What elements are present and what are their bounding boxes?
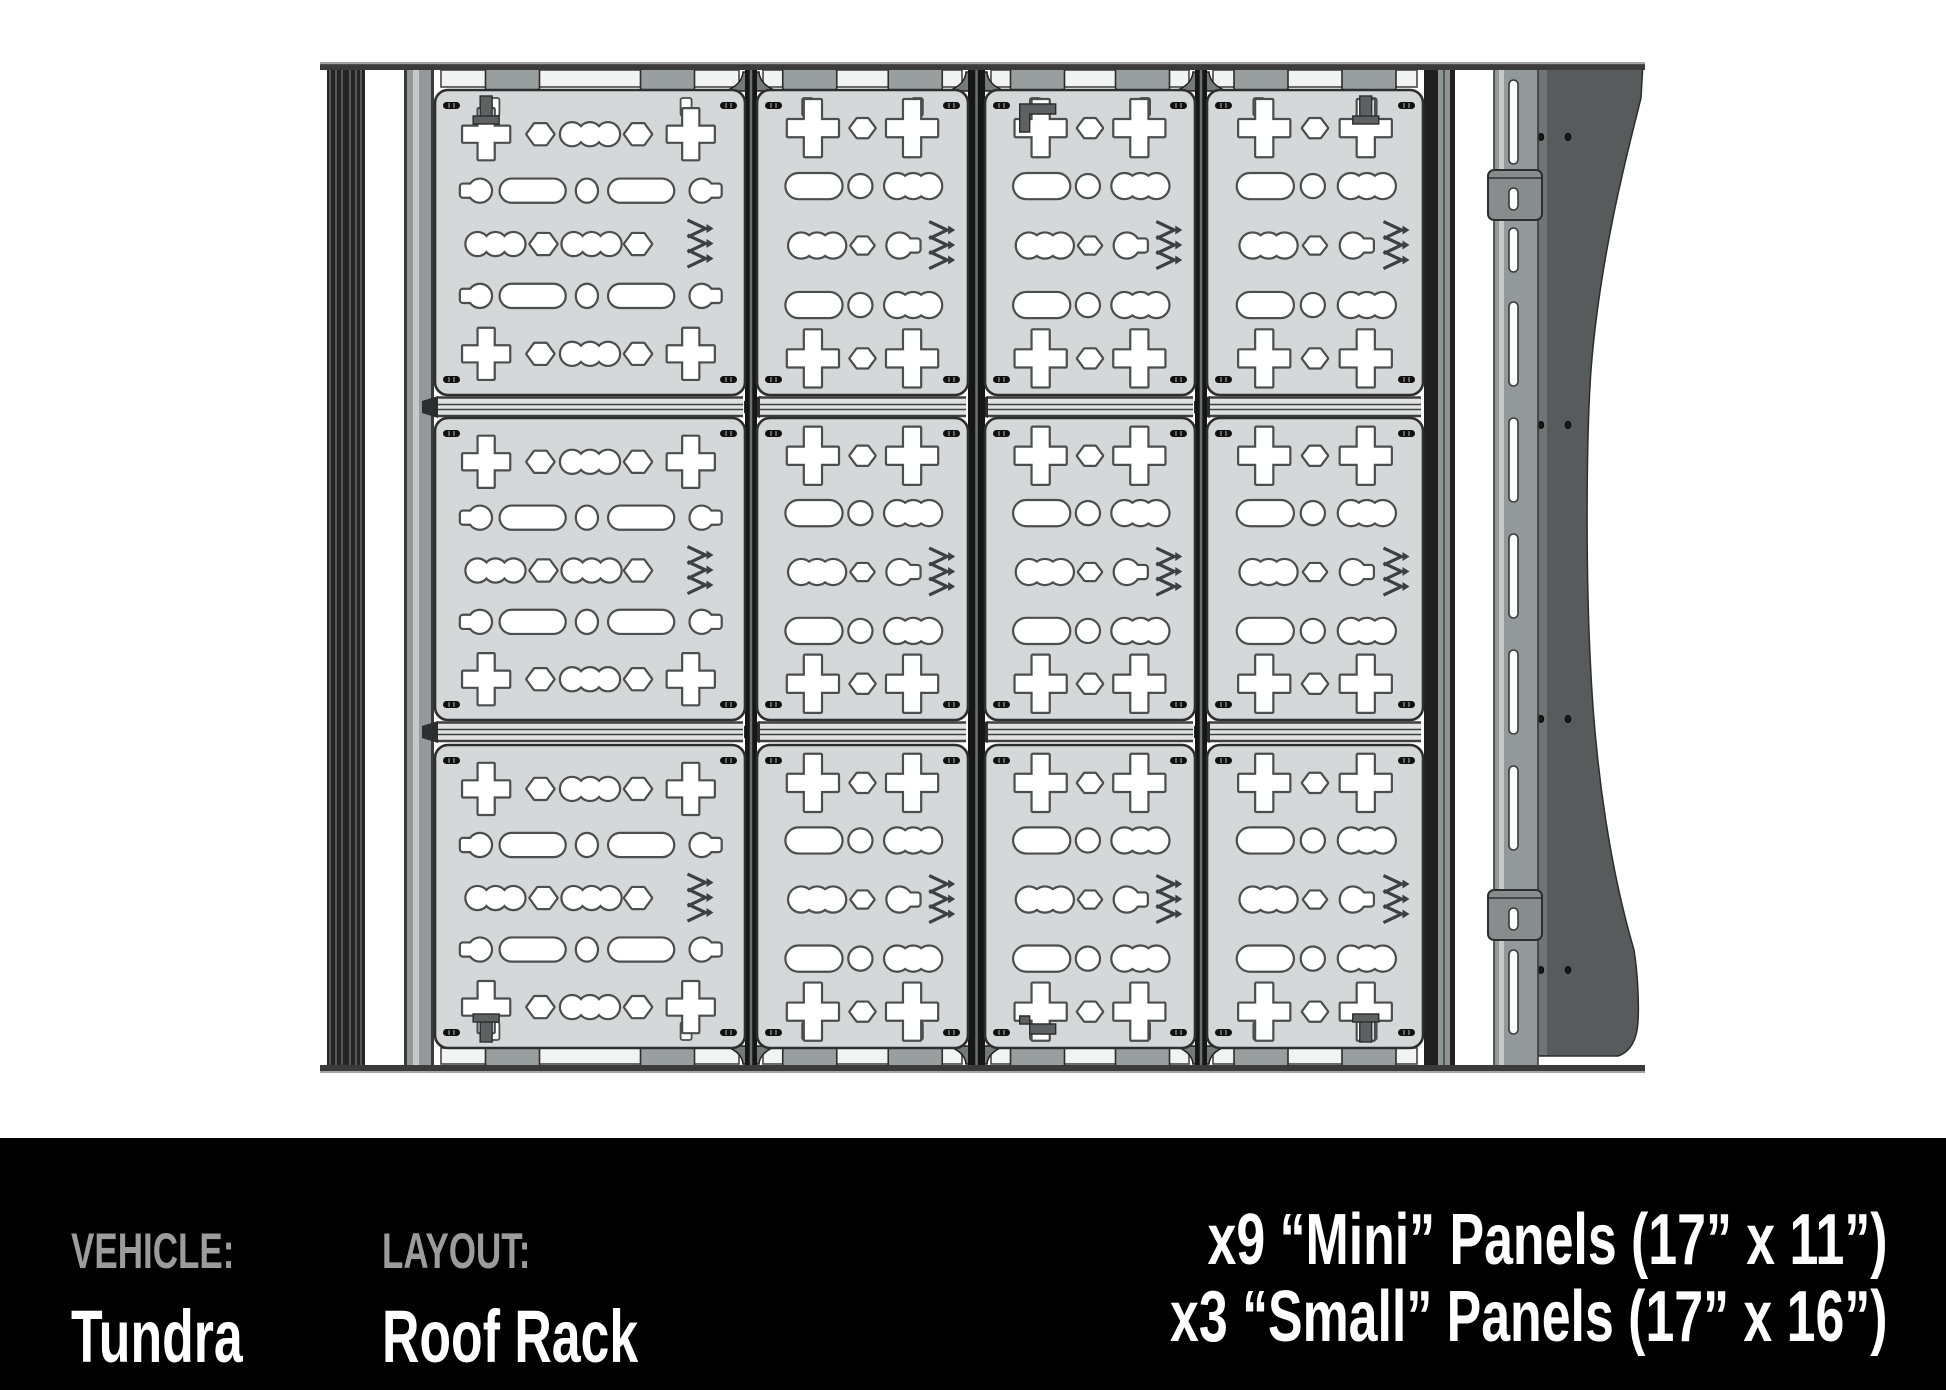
panel-screw [1170, 376, 1187, 383]
rail-clamp-bracket [1488, 170, 1542, 220]
panel-small-r2-c1 [435, 418, 745, 720]
panel-screw [1170, 757, 1187, 764]
rail-slot [1509, 418, 1518, 502]
fairing-hole [1565, 421, 1571, 428]
panel-screw [443, 757, 460, 764]
fairing-hole [1538, 133, 1544, 140]
panel-screw [443, 102, 460, 109]
panel-screw [720, 102, 737, 109]
rail-slot [1509, 534, 1518, 618]
panel-screw [993, 102, 1010, 109]
panel-screw [943, 757, 960, 764]
panel-grid [435, 90, 1423, 1048]
left-rail [327, 66, 365, 1068]
panel-screw [1398, 1029, 1415, 1036]
panel-screw [943, 1029, 960, 1036]
panel-screw [765, 701, 782, 708]
panel-mini-r1-c2 [757, 90, 968, 395]
panel-screw [993, 757, 1010, 764]
panel-screw [720, 1029, 737, 1036]
panel-mini-r3-c2 [757, 745, 968, 1048]
panel-small-r3-c1 [435, 745, 745, 1048]
wind-fairing [1538, 63, 1643, 1056]
panel-mini-r2-c3 [985, 418, 1195, 720]
panel-screw [720, 757, 737, 764]
panel-screw [1398, 102, 1415, 109]
panel-screw [1215, 1029, 1232, 1036]
panel-mini-r2-c2 [757, 418, 968, 720]
panel-screw [720, 376, 737, 383]
vehicle-label: VEHICLE: [71, 1222, 234, 1280]
panel-screw [443, 376, 460, 383]
panel-screw [765, 757, 782, 764]
rail-slot [1509, 80, 1518, 164]
panel-screw [720, 430, 737, 437]
panel-screw [1215, 376, 1232, 383]
panel-screw [1398, 757, 1415, 764]
rail-slot [1509, 650, 1518, 734]
fairing-hole [1538, 966, 1544, 973]
panel-mini-r1-c3 [985, 90, 1195, 395]
layout-label: LAYOUT: [382, 1222, 530, 1280]
roof-rack-top-view [0, 0, 1946, 1138]
panel-mini-r3-c4 [1207, 745, 1423, 1048]
rail-clamp-bracket [1488, 890, 1542, 940]
panel-mini-r2-c4 [1207, 418, 1423, 720]
panel-screw [1398, 376, 1415, 383]
mini-panel-count: x9 “Mini” Panels (17” x 11”) [1171, 1202, 1888, 1279]
panel-screw [443, 701, 460, 708]
panel-screw [943, 701, 960, 708]
panel-screw [765, 430, 782, 437]
panel-screw [1398, 430, 1415, 437]
fairing-hole [1538, 421, 1544, 428]
panel-screw [765, 1029, 782, 1036]
panel-screw [443, 1029, 460, 1036]
panel-screw [443, 430, 460, 437]
rail-slot [1509, 950, 1518, 1034]
panel-mini-r1-c4 [1207, 90, 1423, 395]
fairing-hole [1565, 133, 1571, 140]
panel-screw [993, 701, 1010, 708]
panel-screw [943, 376, 960, 383]
fairing-hole [1538, 715, 1544, 722]
panel-screw [1170, 701, 1187, 708]
fairing-hole [1565, 966, 1571, 973]
fairing-hole [1565, 715, 1571, 722]
panel-screw [943, 430, 960, 437]
panel-mini-r3-c3 [985, 745, 1195, 1048]
layout-value: Roof Rack [382, 1294, 638, 1379]
vehicle-value: Tundra [71, 1294, 243, 1379]
small-panel-count: x3 “Small” Panels (17” x 16”) [1171, 1279, 1888, 1356]
panel-screw [1215, 102, 1232, 109]
spec-sheet: VEHICLE: Tundra LAYOUT: Roof Rack x9 “Mi… [0, 0, 1946, 1390]
panel-screw [1215, 430, 1232, 437]
panel-screw [1215, 701, 1232, 708]
rail-slot [1509, 302, 1518, 386]
panel-screw [765, 102, 782, 109]
panel-screw [765, 376, 782, 383]
rail-slot [1509, 228, 1518, 272]
panel-screw [720, 701, 737, 708]
panel-count-block: x9 “Mini” Panels (17” x 11”) x3 “Small” … [1171, 1202, 1888, 1356]
panel-screw [993, 430, 1010, 437]
right-edge-rail [1424, 66, 1455, 1068]
panel-screw [1215, 757, 1232, 764]
panel-small-r1-c1 [435, 90, 745, 395]
panel-screw [993, 1029, 1010, 1036]
panel-screw [1170, 1029, 1187, 1036]
panel-screw [1398, 701, 1415, 708]
info-bar: VEHICLE: Tundra LAYOUT: Roof Rack x9 “Mi… [0, 1138, 1946, 1390]
panel-screw [993, 376, 1010, 383]
rail-slot [1509, 766, 1518, 850]
left-gray-rail [404, 66, 434, 1068]
panel-screw [943, 102, 960, 109]
right-slotted-rail [1488, 66, 1542, 1068]
panel-screw [1170, 430, 1187, 437]
panel-screw [1170, 102, 1187, 109]
